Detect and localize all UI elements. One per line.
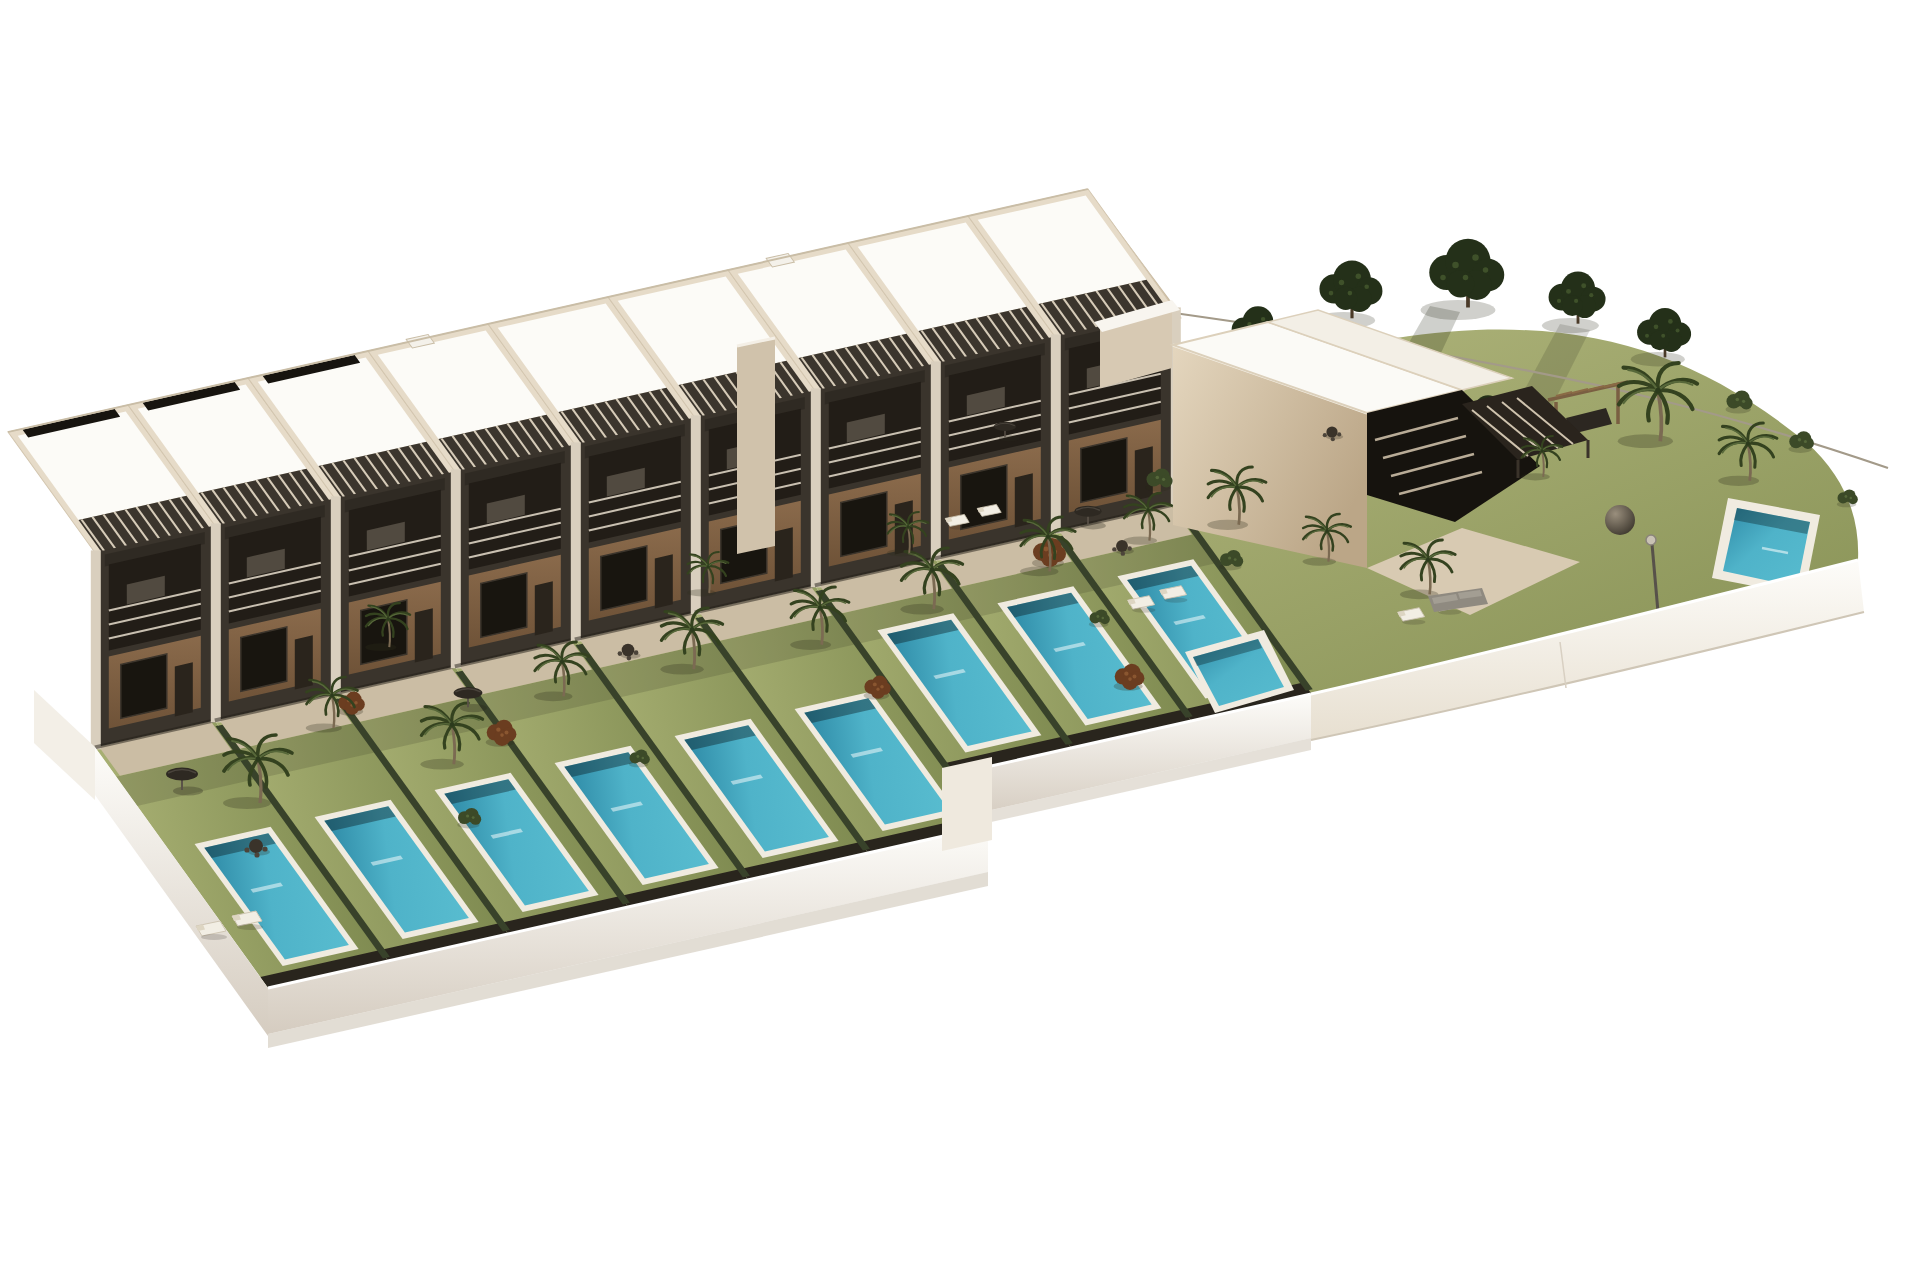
window bbox=[481, 573, 527, 637]
party-wall-pier bbox=[931, 361, 941, 560]
window bbox=[601, 546, 647, 610]
wall-step bbox=[942, 757, 992, 851]
party-wall-pier bbox=[811, 388, 821, 587]
door bbox=[535, 581, 553, 635]
window bbox=[841, 492, 887, 556]
window bbox=[1081, 438, 1127, 502]
stair-gable-wall bbox=[737, 338, 775, 554]
door bbox=[655, 554, 673, 608]
party-wall-pier bbox=[91, 550, 101, 749]
tree bbox=[1421, 239, 1505, 320]
party-wall-pier bbox=[211, 523, 221, 722]
party-wall-pier bbox=[331, 496, 341, 695]
render-canvas bbox=[0, 0, 1920, 1280]
window bbox=[241, 627, 287, 691]
party-wall-pier bbox=[571, 442, 581, 641]
mirror-sphere bbox=[1605, 505, 1635, 535]
door bbox=[415, 608, 433, 662]
architectural-render bbox=[0, 0, 1920, 1280]
door bbox=[775, 527, 793, 581]
party-wall-pier bbox=[691, 415, 701, 614]
party-wall-pier bbox=[1051, 334, 1061, 533]
door bbox=[175, 662, 193, 716]
tree bbox=[1542, 271, 1606, 333]
left-wing-wall bbox=[34, 690, 95, 800]
window bbox=[121, 654, 167, 718]
window bbox=[361, 600, 407, 664]
tree bbox=[1631, 308, 1691, 367]
party-wall-pier bbox=[451, 469, 461, 668]
